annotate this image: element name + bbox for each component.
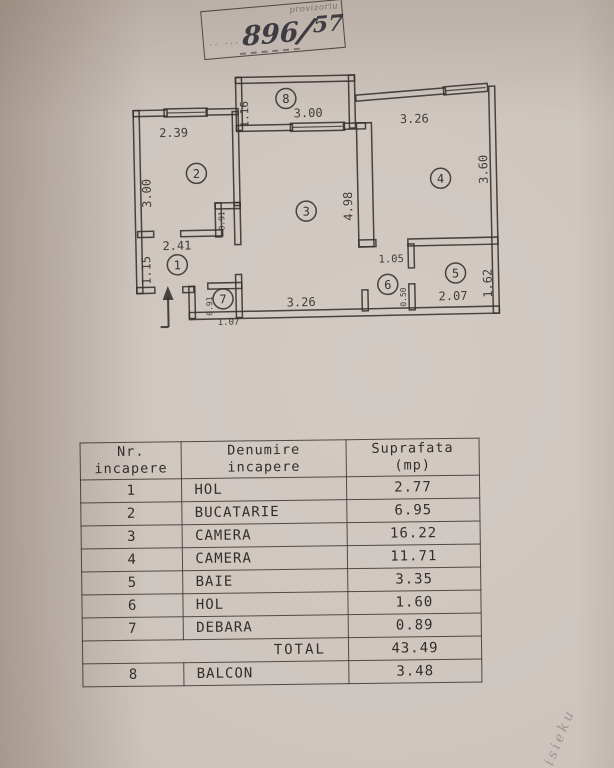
room-name-cell: DEBARA xyxy=(183,614,348,639)
room-label-7: 7 xyxy=(213,289,233,309)
room-area-cell: 1.60 xyxy=(348,590,481,615)
dim-hol-height: 1.15 xyxy=(139,256,154,285)
dim-bath-height: 1.62 xyxy=(480,269,495,298)
room-number-cell: 4 xyxy=(81,547,183,571)
room-area-cell: 11.71 xyxy=(347,544,480,569)
area-table-body: 1HOL2.772BUCATARIE6.953CAMERA16.224CAMER… xyxy=(80,475,481,687)
room-number-cell: 7 xyxy=(82,616,184,640)
room-name-cell: HOL xyxy=(182,476,347,501)
room-name-cell: CAMERA xyxy=(182,522,347,547)
dim-hol-width: 2.41 xyxy=(162,238,191,253)
room-area-cell: 2.77 xyxy=(346,475,479,500)
room-number: 6 xyxy=(384,278,392,292)
room-label-1: 1 xyxy=(167,255,187,275)
dim-debara-height: 0.91 xyxy=(205,296,214,316)
room-label-5: 5 xyxy=(445,263,465,283)
header-nr-line1: Nr. xyxy=(81,443,182,461)
room-label-2: 2 xyxy=(186,163,206,183)
room-number: 2 xyxy=(193,167,201,181)
header-denumire: Denumire incapere xyxy=(181,440,346,479)
dim-room3-height: 4.98 xyxy=(341,192,356,221)
room-number: 7 xyxy=(219,292,227,306)
room-number-cell: 3 xyxy=(81,524,183,548)
dim-bath-width: 2.07 xyxy=(438,289,467,304)
header-denumire-line2: incapere xyxy=(182,458,346,477)
dim-hall-width: 1.05 xyxy=(378,253,404,266)
room-area-cell: 3.48 xyxy=(349,659,482,684)
dim-room4-width: 3.26 xyxy=(400,111,429,126)
room-area-cell: 0.89 xyxy=(348,613,481,638)
room-label-3: 3 xyxy=(296,201,316,221)
room-number: 4 xyxy=(437,172,445,186)
header-suprafata-line1: Suprafata xyxy=(346,440,478,458)
dim-kitchen-height: 3.00 xyxy=(140,179,155,208)
dim-niche-depth: 0.91 xyxy=(217,211,226,231)
room-number-cell: 2 xyxy=(81,501,183,525)
total-label-cell: TOTAL xyxy=(82,637,348,663)
margin-handwriting-note: isieku xyxy=(541,706,578,768)
room-number-cell: 5 xyxy=(82,570,184,594)
area-table: Nr. incapere Denumire incapere Suprafata… xyxy=(80,438,483,688)
room-name-cell: HOL xyxy=(183,591,348,616)
dim-room3-width: 3.26 xyxy=(287,295,316,310)
scanned-document-page: provizoriu ·· ···896/57 xyxy=(0,0,614,768)
room-name-cell: CAMERA xyxy=(183,545,348,570)
room-number: 5 xyxy=(452,266,460,280)
room-number-cell: 6 xyxy=(82,593,184,617)
floor-plan: 1 2 3 4 5 6 7 8 2.39 3.00 0.91 1.16 3.00… xyxy=(0,0,614,400)
header-suprafata-line2: (mp) xyxy=(347,456,479,474)
dim-hall-step: 0.50 xyxy=(399,287,408,307)
header-nr: Nr. incapere xyxy=(80,442,182,480)
room-label-6: 6 xyxy=(378,274,398,294)
room-number: 8 xyxy=(282,92,290,106)
header-denumire-line1: Denumire xyxy=(182,441,346,460)
room-area-cell: 16.22 xyxy=(347,521,480,546)
area-table-header: Nr. incapere Denumire incapere Suprafata… xyxy=(80,438,479,480)
dim-room4-height: 3.60 xyxy=(476,155,491,184)
header-nr-line2: incapere xyxy=(81,460,182,478)
room-number: 3 xyxy=(302,205,310,219)
room-number-cell: 1 xyxy=(80,478,182,502)
room-number-cell: 8 xyxy=(83,662,185,686)
dim-kitchen-width: 2.39 xyxy=(159,126,188,141)
dim-balcony-depth: 1.16 xyxy=(238,101,252,128)
room-label-4: 4 xyxy=(430,168,450,188)
room-number: 1 xyxy=(174,258,182,272)
room-name-cell: BAIE xyxy=(183,568,348,593)
entrance-arrow-icon xyxy=(160,286,174,327)
room-name-cell: BUCATARIE xyxy=(182,499,347,524)
total-area-cell: 43.49 xyxy=(348,636,481,661)
dim-balcony-width: 3.00 xyxy=(294,106,323,121)
room-area-cell: 6.95 xyxy=(347,498,480,523)
dim-debara-width: 1.07 xyxy=(218,318,240,328)
room-area-cell: 3.35 xyxy=(347,567,480,592)
header-suprafata: Suprafata (mp) xyxy=(346,438,480,476)
room-name-cell: BALCON xyxy=(184,660,349,685)
table-row: 8BALCON3.48 xyxy=(83,659,482,687)
